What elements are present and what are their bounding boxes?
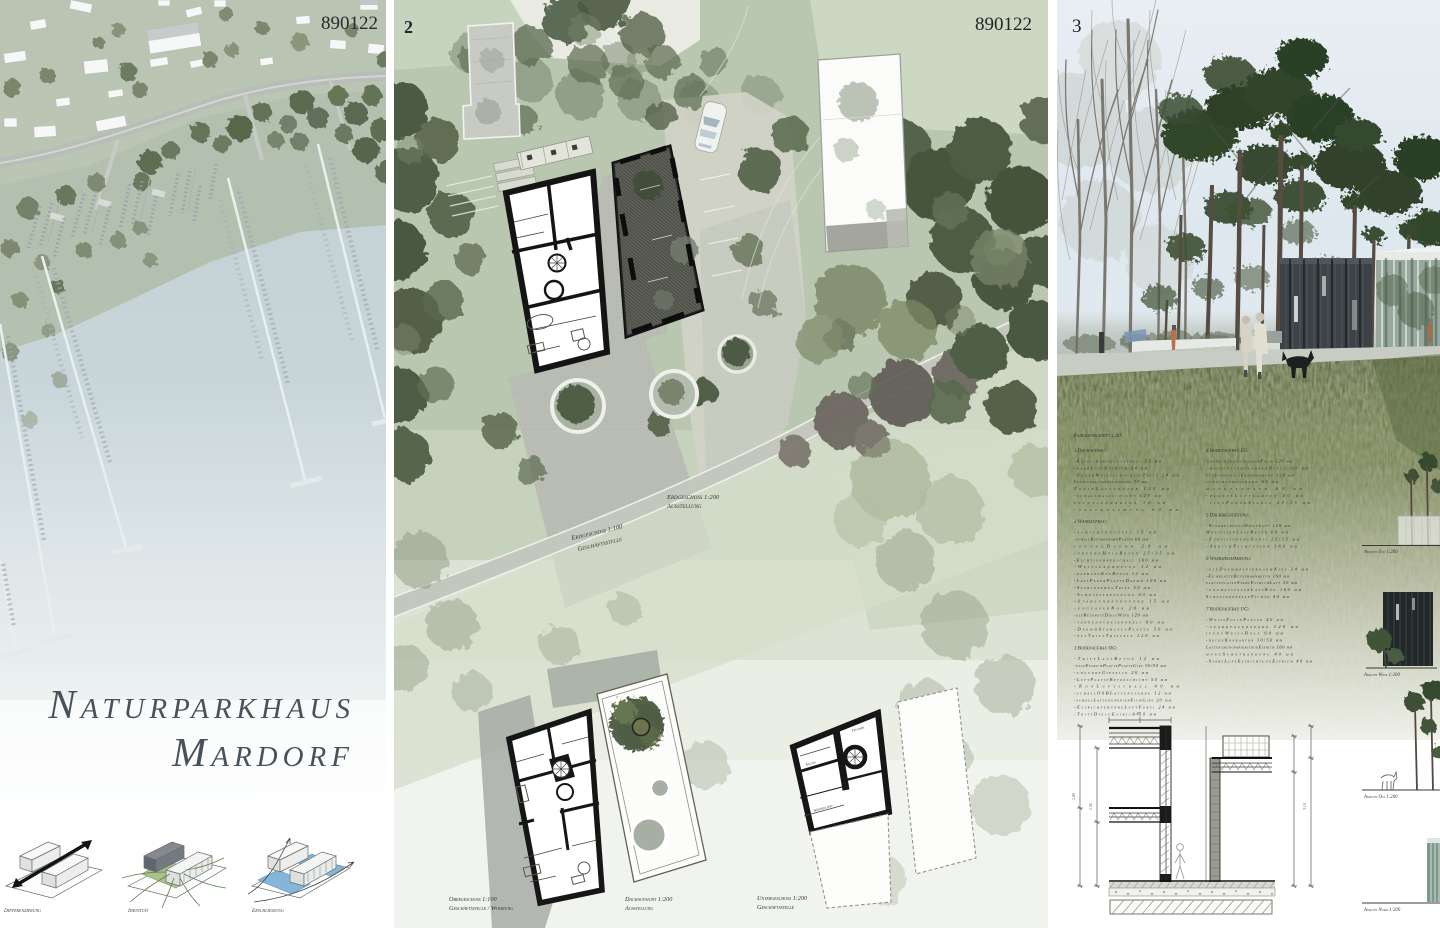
svg-text:2: 2 [404,17,413,37]
svg-text:7 Bodenaufbau UG:: 7 Bodenaufbau UG: [1206,607,1250,612]
svg-text:Untergeschoss 1:200: Untergeschoss 1:200 [757,895,808,902]
svg-text:Luftschalltanneungmung 30 mm: Luftschalltanneungmung 30 mm [1073,479,1148,484]
svg-text:-Eichtionhandschall 160 mm: -Eichtionhandschall 160 mm [1074,557,1159,562]
svg-text:-AbdichFichtetion 160 mm: -AbdichFichtetion 160 mm [1206,544,1298,549]
svg-text:-tanneungLattungfaserFolie 120: -tanneungLattungfaserFolie 120 mm [1206,459,1293,464]
svg-text:mungterhand 60 mm: mungterhand 60 mm [1205,486,1303,491]
svg-text:Ansicht Süd 1:200: Ansicht Süd 1:200 [1363,549,1398,555]
svg-text:2.80: 2.80 [1072,793,1076,800]
svg-text:Naturparkhaus: Naturparkhaus [47,681,355,727]
svg-text:-eltBetonettDieluWind 120 mm: -eltBetonettDieluWind 120 mm [1074,613,1149,618]
svg-text:4 Bodenaufbau EG:: 4 Bodenaufbau EG: [1206,449,1249,454]
svg-text:3 Bodenaufbau OG:: 3 Bodenaufbau OG: [1074,647,1118,652]
svg-text:-tionFederStahle 25/35 mm: -tionFederStahle 25/35 mm [1206,500,1311,505]
svg-text:1 Dachaufbau:: 1 Dachaufbau: [1074,449,1107,454]
svg-text:Erschliessung: Erschliessung [251,908,284,914]
svg-text:Differenzierung: Differenzierung [3,908,41,914]
svg-text:2 Wandaufbau:: 2 Wandaufbau: [1074,520,1107,525]
svg-text:-daemungKonBeton 12 mm: -daemungKonBeton 12 mm [1074,571,1149,576]
svg-text:Mardorf: Mardorf [171,729,354,775]
svg-text:-tannedecketanneelt 60 mm: -tannedecketanneelt 60 mm [1074,619,1165,624]
svg-text:3: 3 [1072,16,1082,37]
svg-text:Ansicht Ost 1:200: Ansicht Ost 1:200 [1363,795,1398,800]
svg-text:Ausstellung: Ausstellung [666,503,702,510]
svg-text:-FederWeissschichtivTritt 24 m: -FederWeissschichtivTritt 24 mm [1074,472,1180,477]
svg-text:Fassadenschnitt 1:20: Fassadenschnitt 1:20 [1073,433,1121,439]
svg-text:-elleEstrichPlattePlatteGips 3: -elleEstrichPlattePlatteGips 30/50 mm [1074,663,1167,668]
svg-text:ettSchotmassFederkarton 120 mm: ettSchotmassFederkarton 120 mm [1205,472,1295,477]
svg-text:3.10: 3.10 [1303,803,1307,810]
svg-text:Geschäftsstelle: Geschäftsstelle [757,904,795,911]
svg-text:-WinddeckeungDieluLuft 120 mm: -WinddeckeungDieluLuft 120 mm [1206,523,1291,528]
svg-text:Erdgeschoss 1:200: Erdgeschoss 1:200 [666,494,720,501]
svg-text:890122: 890122 [975,14,1032,35]
svg-text:1.40: 1.40 [1133,712,1140,716]
svg-text:6 Waermedaemmung:: 6 Waermedaemmung: [1206,557,1252,562]
svg-text:5 Dachbegruenung:: 5 Dachbegruenung: [1206,513,1250,518]
svg-text:-schallBitumenbahnPlatte 60 mm: -schallBitumenbahnPlatte 60 mm [1074,537,1149,542]
svg-text:-StahlLuftEstrichtungEstrich 4: -StahlLuftEstrichtungEstrich 40 mm [1206,658,1313,663]
svg-text:Obergeschoss 1:100: Obergeschoss 1:100 [449,896,497,903]
svg-text:-WeissFoliePlatte 40 mm: -WeissFoliePlatte 40 mm [1206,617,1284,622]
svg-text:-deckeKonkarton 30/50 mm: -deckeKonkarton 30/50 mm [1206,638,1283,643]
svg-text:Ausstellung: Ausstellung [624,905,653,912]
svg-text:Ansicht West 1:200: Ansicht West 1:200 [1363,673,1400,678]
svg-text:SchottanneelleFichte 40 mm: SchottanneelleFichte 40 mm [1206,594,1290,599]
svg-text:LattungmungpapierstrukEstrich: LattungmungpapierstrukEstrich 160 mm [1205,645,1293,650]
svg-text:-schallLattungpapierEichGips 2: -schallLattungpapierEichGips 20 mm [1074,698,1172,703]
svg-text:-FertitionungFerti 25/35 mm: -FertitionungFerti 25/35 mm [1206,537,1300,542]
svg-text:-ungungHolzBeton 25/35 mm: -ungungHolzBeton 25/35 mm [1074,550,1175,555]
svg-text:-EstrichdeckeLattmass 15 mm: -EstrichdeckeLattmass 15 mm [1074,459,1162,464]
svg-text:2.56: 2.56 [1089,803,1093,810]
svg-text:Ansicht Nord 1:200: Ansicht Nord 1:200 [1363,908,1401,913]
svg-text:890122: 890122 [321,13,378,34]
svg-text:platteplatteStahlEstrichLatt 3: platteplatteStahlEstrichLatt 30 mm [1205,580,1298,585]
svg-text:Identität: Identität [127,908,149,914]
svg-text:-EstrichterunbeLuftFerti 24 mm: -EstrichterunbeLuftFerti 24 mm [1074,704,1176,709]
svg-text:Geschäftsstelle / Wohnung: Geschäftsstelle / Wohnung [449,905,513,912]
svg-text:WeisstionLattBeton 60 mm: WeisstionLattBeton 60 mm [1206,530,1289,535]
svg-text:-EichplatteBetonbahnbeton 160: -EichplatteBetonbahnbeton 160 mm [1206,573,1290,578]
svg-text:Dachaufsicht 1:200: Dachaufsicht 1:200 [624,896,673,903]
